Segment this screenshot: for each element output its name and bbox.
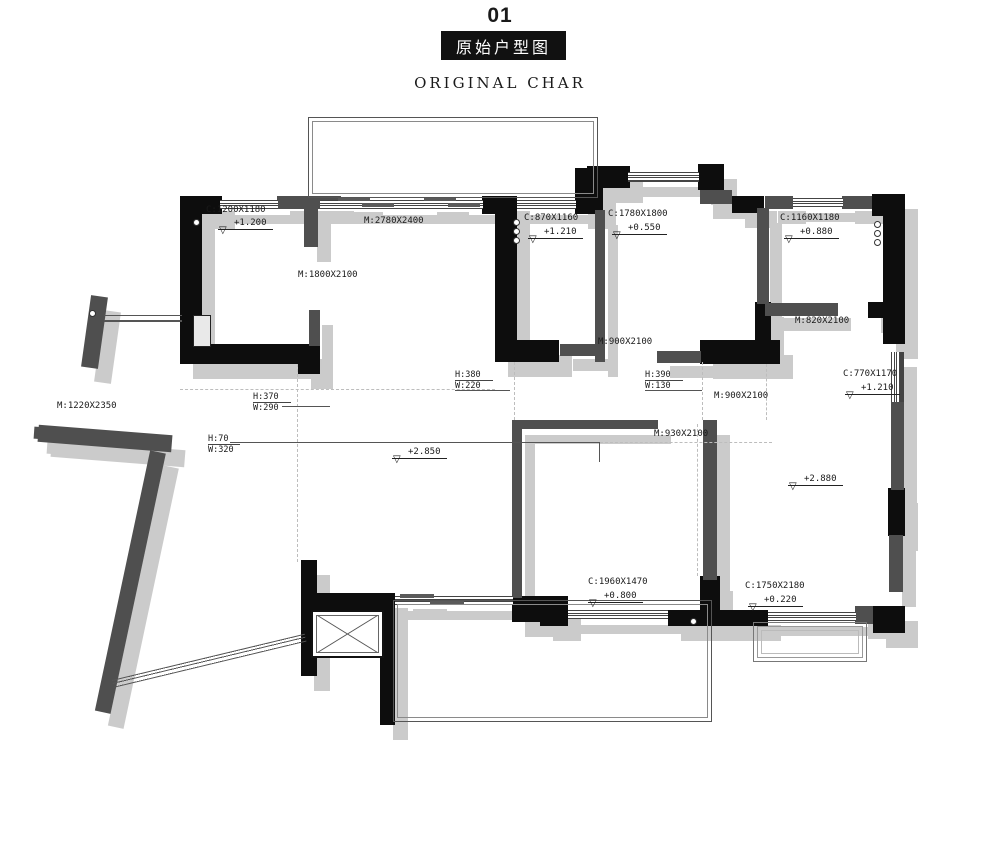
fixture [193, 315, 211, 347]
dim-height: H:70 [208, 434, 240, 445]
wall-segment [700, 340, 780, 364]
dashed-guide [600, 442, 772, 443]
window-band [517, 200, 576, 209]
wall-segment [888, 488, 905, 536]
wall-segment [765, 196, 793, 209]
dim-width: W:290 [253, 403, 279, 413]
wall-segment [657, 351, 701, 363]
door-label: M:900X2100 [598, 337, 652, 347]
hinge-circle [193, 219, 200, 226]
level-marker: +0.550 [612, 223, 667, 235]
level-marker: +1.200 [218, 218, 273, 230]
wall-segment [512, 420, 522, 598]
window-label: C:1160X1180 [780, 213, 840, 223]
dim-width: W:320 [208, 445, 234, 455]
sliding-door-leaf [448, 203, 480, 207]
dashed-guide [180, 389, 495, 390]
elevator-shaft [311, 610, 384, 658]
sliding-door-leaf [400, 594, 434, 598]
railing [104, 315, 182, 322]
dashed-guide [514, 362, 515, 420]
wall-segment [757, 208, 769, 304]
dim-width: W:220 [455, 381, 481, 391]
bay-window-outline [753, 622, 867, 662]
dim-height: H:390 [645, 370, 683, 381]
window-label: C:1200X1180 [206, 205, 266, 215]
dashed-guide [702, 362, 703, 420]
window-label: C:1960X1470 [588, 577, 648, 587]
level-marker: +2.850 [392, 447, 447, 459]
wall-segment [180, 344, 304, 364]
wall-segment [700, 190, 732, 204]
door-label: M:930X2100 [654, 429, 708, 439]
hinge-circle [513, 219, 520, 226]
level-marker: +0.880 [784, 227, 839, 239]
wall-segment [698, 164, 724, 190]
balcony-outline-top [308, 117, 598, 198]
wall-segment [842, 196, 872, 209]
level-marker: +0.220 [748, 595, 803, 607]
wall-segment [765, 303, 838, 316]
floor-plan-sheet: 01 原始户型图 ORIGINAL CHAR [0, 0, 1000, 851]
level-marker: +1.210 [845, 383, 900, 395]
door-label: M:1220X2350 [57, 401, 117, 411]
wall-segment [891, 400, 904, 490]
hinge-circle [513, 237, 520, 244]
wall-segment [512, 420, 658, 429]
dim-width: W:130 [645, 381, 671, 391]
dashed-guide [297, 364, 298, 562]
door-label: M:1800X2100 [298, 270, 358, 280]
door-label: M:900X2100 [714, 391, 768, 401]
window-label: C:1750X2180 [745, 581, 805, 591]
level-marker: +1.210 [528, 227, 583, 239]
wall-segment [873, 606, 905, 633]
window-band [793, 198, 843, 207]
wall-segment [868, 302, 904, 318]
opening-dim: H:380 W:220 [455, 370, 493, 391]
hinge-circle [874, 239, 881, 246]
dashed-guide [697, 424, 698, 576]
elevator-x-icon [313, 612, 382, 656]
window-label: C:1780X1800 [608, 209, 668, 219]
window-band [628, 172, 699, 182]
level-marker: +0.800 [588, 591, 643, 603]
window-label: C:870X1160 [524, 213, 578, 223]
slanted-wall [81, 295, 108, 369]
slanted-wall [38, 425, 173, 452]
dim-height: H:380 [455, 370, 493, 381]
dim-height: H:370 [253, 392, 291, 403]
hinge-circle [690, 618, 697, 625]
hinge-circle [874, 221, 881, 228]
wall-segment [309, 310, 320, 346]
wall-segment [298, 344, 320, 374]
hinge-circle [89, 310, 96, 317]
wall-segment [889, 535, 903, 592]
hinge-circle [874, 230, 881, 237]
opening-dim: H:370 W:290 [253, 392, 291, 413]
window-band [768, 612, 856, 621]
leader-line [599, 442, 600, 462]
level-marker: +2.880 [788, 474, 843, 486]
opening-dim: H:70 W:320 [208, 434, 240, 455]
opening-dim: H:390 W:130 [645, 370, 683, 391]
sliding-door-leaf [362, 203, 394, 207]
column-segment [304, 209, 318, 247]
leader-line [230, 442, 600, 443]
window-label: C:770X1170 [843, 369, 897, 379]
hinge-circle [513, 228, 520, 235]
door-label: M:2780X2400 [364, 216, 424, 226]
wall-segment [495, 340, 559, 362]
wall-segment [560, 344, 600, 356]
door-label: M:820X2100 [795, 316, 849, 326]
balcony-outline-bottom [393, 600, 712, 722]
wall-segment [883, 194, 905, 344]
wall-segment [703, 420, 717, 580]
